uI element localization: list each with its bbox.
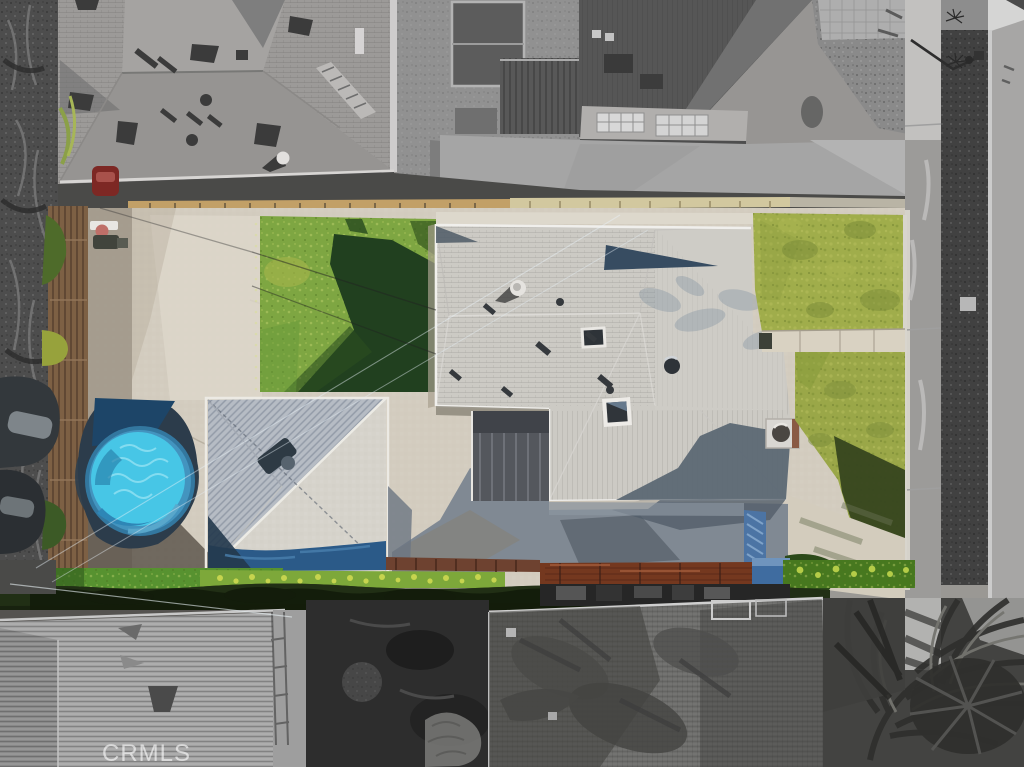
svg-text:CRMLS: CRMLS xyxy=(102,740,191,767)
